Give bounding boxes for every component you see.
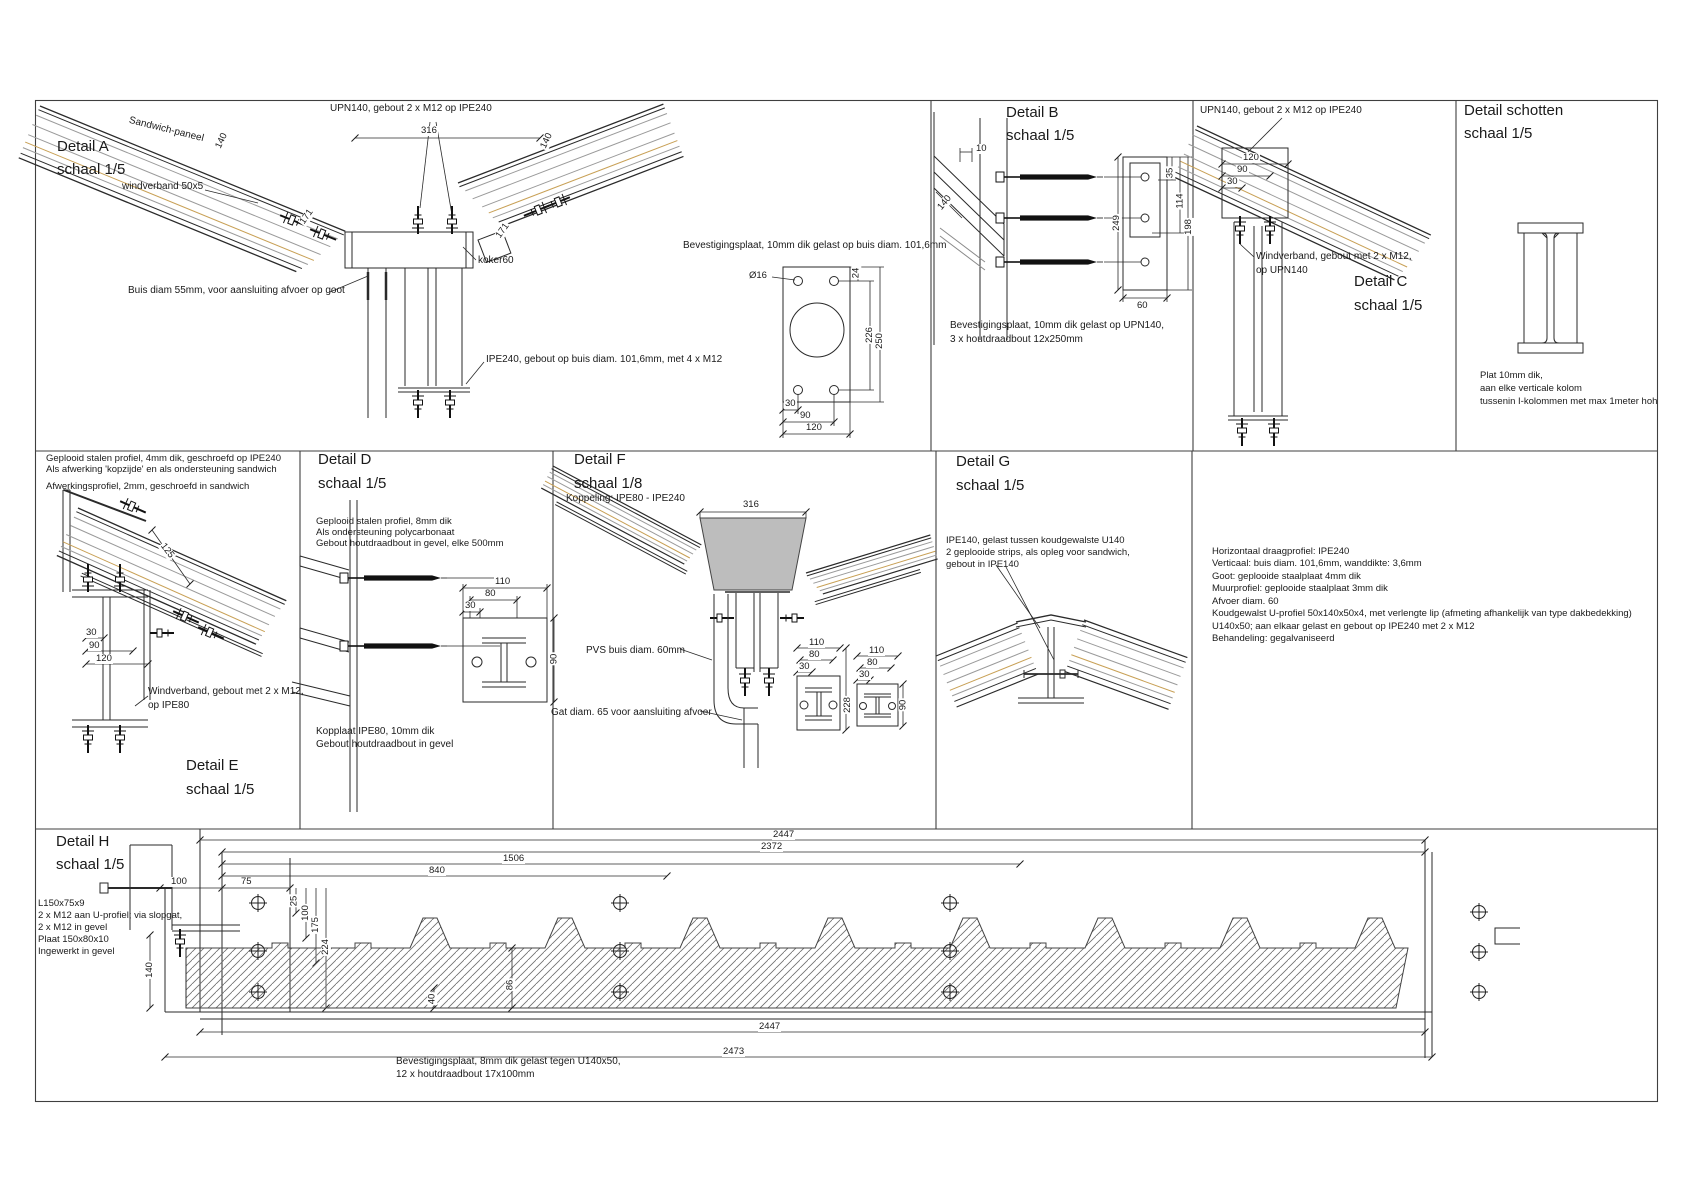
detail-c-dim-120: 120 <box>1242 153 1260 163</box>
detail-a-label-buis: Buis diam 55mm, voor aansluiting afvoer … <box>128 285 345 296</box>
detail-h-dim-140: 140 <box>145 961 155 979</box>
detail-a-label-dia16: Ø16 <box>748 271 768 281</box>
detail-c-title: Detail C <box>1354 273 1407 290</box>
detail-d-label-kop-2: Gebout houtdraadbout in gevel <box>316 739 453 750</box>
detail-e-label-wind-2: op IPE80 <box>148 700 189 711</box>
detail-b-linework <box>934 112 1192 345</box>
detail-f-p2-dim-30: 30 <box>858 670 871 680</box>
detail-g-note-1: IPE140, gelast tussen koudgewalste U140 <box>946 535 1125 546</box>
spec-note-line-3: Goot: geplooide staalplaat 4mm dik <box>1212 571 1361 582</box>
detail-f-p1-dim-80: 80 <box>808 650 821 660</box>
spec-note-line-5: Afvoer diam. 60 <box>1212 596 1279 607</box>
roof-band-right <box>458 104 683 235</box>
detail-b-scale: schaal 1/5 <box>1006 127 1074 144</box>
detail-f-p1-dim-30: 30 <box>798 662 811 672</box>
detail-d-note-2: Als ondersteuning polycarbonaat <box>316 527 454 538</box>
detail-c-dim-30: 30 <box>1226 177 1239 187</box>
detail-h-note-b2: 12 x houtdraadbout 17x100mm <box>396 1069 534 1080</box>
detail-h-dim-40: 40 <box>427 993 437 1006</box>
detail-schotten-linework <box>1518 223 1583 353</box>
detail-a-dim-250: 250 <box>875 332 885 350</box>
detail-h-title: Detail H <box>56 833 109 850</box>
spec-note-line-6: Koudgewalst U-profiel 50x140x50x4, met v… <box>1212 608 1632 619</box>
spec-note-line-4: Muurprofiel: geplooide staalplaat 3mm di… <box>1212 583 1388 594</box>
detail-a-label-koker: koker60 <box>478 255 514 266</box>
detail-h-note-b1: Bevestigingsplaat, 8mm dik gelast tegen … <box>396 1056 621 1067</box>
detail-h-note-l5: Ingewerkt in gevel <box>38 946 115 957</box>
detail-f-p2-dim-90: 90 <box>898 699 908 712</box>
detail-h-dim-175: 175 <box>311 916 321 934</box>
detail-a-dim-30: 30 <box>784 399 797 409</box>
spec-note-line-2: Verticaal: buis diam. 101,6mm, wanddikte… <box>1212 558 1422 569</box>
detail-schotten-note-2: aan elke verticale kolom <box>1480 383 1582 394</box>
detail-b-note-2: 3 x houtdraadbout 12x250mm <box>950 334 1083 345</box>
detail-b-dim-10: 10 <box>975 144 988 154</box>
detail-schotten-note-3: tussenin I-kolommen met max 1meter hoh <box>1480 396 1657 407</box>
detail-d-note-1: Geplooid stalen profiel, 8mm dik <box>316 516 452 527</box>
detail-a-title: Detail A <box>57 138 109 155</box>
detail-e-title: Detail E <box>186 757 239 774</box>
detail-c-label-wind-2: op UPN140 <box>1256 265 1308 276</box>
roof-band-right <box>1065 620 1187 709</box>
detail-f-dim-316: 316 <box>742 500 760 510</box>
detail-b-dim-198: 198 <box>1184 218 1194 236</box>
detail-f-linework <box>538 466 940 768</box>
detail-e-label-wind-1: Windverband, gebout met 2 x M12, <box>148 686 304 697</box>
detail-f-p1-dim-110: 110 <box>808 638 825 648</box>
detail-h-note-l1: L150x75x9 <box>38 898 84 909</box>
detail-a-dim-24: 24 <box>851 267 861 280</box>
detail-e-note-1: Geplooid stalen profiel, 4mm dik, geschr… <box>46 453 281 464</box>
spec-note-line-7: U140x50; aan elkaar gelast en gebout op … <box>1212 621 1474 632</box>
detail-g-note-2: 2 geplooide strips, als opleg voor sandw… <box>946 547 1130 558</box>
detail-a-dim-90: 90 <box>799 411 812 421</box>
detail-f-subtitle: Koppeling: IPE80 - IPE240 <box>566 493 685 504</box>
detail-h-dim-224: 224 <box>321 938 331 956</box>
detail-f-title: Detail F <box>574 451 626 468</box>
detail-b-dim-114: 114 <box>1176 192 1186 209</box>
detail-g-scale: schaal 1/5 <box>956 477 1024 494</box>
detail-h-note-l3: 2 x M12 in gevel <box>38 922 107 933</box>
detail-b-dim-249: 249 <box>1112 214 1122 232</box>
detail-h-dim-2372: 2372 <box>760 842 783 852</box>
detail-e-dim-30: 30 <box>85 628 98 638</box>
detail-a-dim-120: 120 <box>805 423 823 433</box>
detail-f-scale: schaal 1/8 <box>574 475 642 492</box>
detail-f-label-pvs: PVS buis diam. 60mm <box>586 645 685 656</box>
detail-a-label-upn: UPN140, gebout 2 x M12 op IPE240 <box>330 103 492 114</box>
detail-h-dim-2447-bottom: 2447 <box>758 1022 781 1032</box>
detail-e-scale: schaal 1/5 <box>186 781 254 798</box>
detail-f-p1-dim-228: 228 <box>843 696 853 714</box>
detail-h-dim-86: 86 <box>505 979 515 992</box>
detail-d-dim-110: 110 <box>494 577 511 587</box>
detail-d-label-kop-1: Kopplaat IPE80, 10mm dik <box>316 726 434 737</box>
detail-d-scale: schaal 1/5 <box>318 475 386 492</box>
detail-d-dim-80: 80 <box>484 589 497 599</box>
detail-c-dim-90: 90 <box>1236 165 1249 175</box>
detail-d-dim-30: 30 <box>464 601 477 611</box>
detail-h-linework <box>100 829 1520 1061</box>
detail-h-scale: schaal 1/5 <box>56 856 124 873</box>
detail-e-note-2: Als afwerking 'kopzijde' en als onderste… <box>46 464 277 475</box>
detail-f-p2-dim-110: 110 <box>868 646 885 656</box>
detail-h-dim-840: 840 <box>428 866 446 876</box>
detail-schotten-note-1: Plat 10mm dik, <box>1480 370 1543 381</box>
detail-g-linework <box>936 565 1187 709</box>
detail-e-linework <box>53 490 286 753</box>
detail-a-scale: schaal 1/5 <box>57 161 125 178</box>
detail-f-label-gat: Gat diam. 65 voor aansluiting afvoer <box>551 707 712 718</box>
detail-b-note-1: Bevestigingsplaat, 10mm dik gelast op UP… <box>950 320 1164 331</box>
detail-h-dim-100-left: 100 <box>170 877 188 887</box>
detail-h-note-l4: Plaat 150x80x10 <box>38 934 109 945</box>
detail-h-note-l2: 2 x M12 aan U-profiel; via slopgat, <box>38 910 182 921</box>
detail-g-title: Detail G <box>956 453 1010 470</box>
detail-c-label-wind-1: Windverband, gebout met 2 x M12, <box>1256 251 1412 262</box>
detail-b-dim-35: 35 <box>1165 167 1175 180</box>
roof-band-left <box>936 623 1038 707</box>
corrugated-panel <box>186 918 1408 1008</box>
detail-a-dim-316: 316 <box>420 126 438 136</box>
detail-a-label-windverband: windverband 50x5 <box>122 181 203 192</box>
detail-e-dim-90: 90 <box>88 641 101 651</box>
drawing-sheet: Detail A schaal 1/5 Sandwich-paneel wind… <box>0 0 1684 1191</box>
detail-e-dim-120: 120 <box>95 654 113 664</box>
detail-f-p2-dim-80: 80 <box>866 658 879 668</box>
detail-c-label-upn: UPN140, gebout 2 x M12 op IPE240 <box>1200 105 1362 116</box>
detail-b-title: Detail B <box>1006 104 1059 121</box>
detail-g-note-3: gebout in IPE140 <box>946 559 1019 570</box>
detail-h-dim-75: 75 <box>240 877 253 887</box>
spec-note-line-1: Horizontaal draagprofiel: IPE240 <box>1212 546 1349 557</box>
cad-linework <box>0 0 1684 1191</box>
detail-d-title: Detail D <box>318 451 371 468</box>
detail-h-dim-2447-top: 2447 <box>772 830 795 840</box>
detail-h-dim-2473: 2473 <box>722 1047 745 1057</box>
spec-note-line-8: Behandeling: gegalvaniseerd <box>1212 633 1335 644</box>
detail-a-label-plaat: Bevestigingsplaat, 10mm dik gelast op bu… <box>683 240 946 251</box>
detail-e-note-3: Afwerkingsprofiel, 2mm, geschroefd in sa… <box>46 481 249 492</box>
detail-a-label-ipe: IPE240, gebout op buis diam. 101,6mm, me… <box>486 354 722 365</box>
detail-schotten-title: Detail schotten <box>1464 102 1563 119</box>
detail-schotten-scale: schaal 1/5 <box>1464 125 1532 142</box>
detail-c-scale: schaal 1/5 <box>1354 297 1422 314</box>
detail-b-dim-60: 60 <box>1136 301 1149 311</box>
detail-d-note-3: Gebout houtdraadbout in gevel, elke 500m… <box>316 538 504 549</box>
roof-band-right <box>806 535 940 605</box>
detail-h-dim-25: 25 <box>289 895 299 908</box>
detail-h-dim-1506: 1506 <box>502 854 525 864</box>
detail-d-dim-90: 90 <box>549 653 559 666</box>
